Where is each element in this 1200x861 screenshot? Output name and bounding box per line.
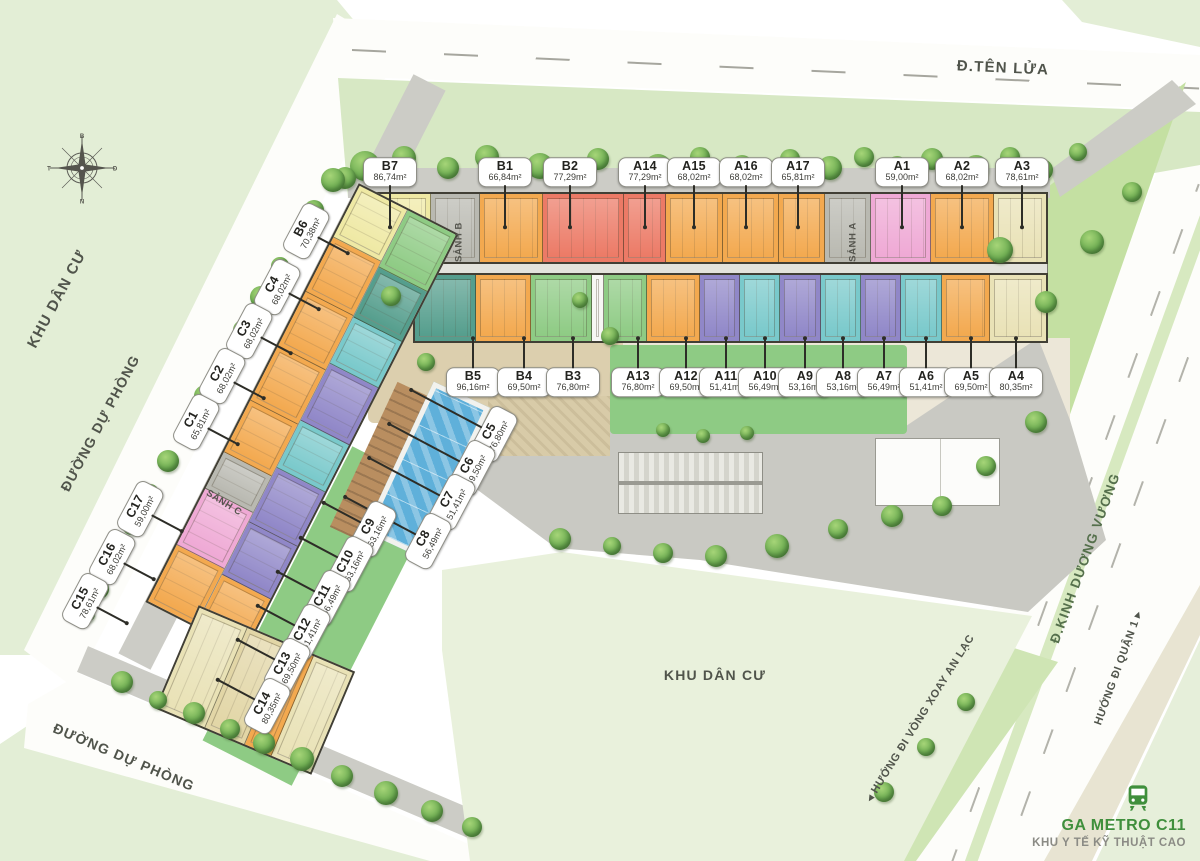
tree <box>421 800 443 822</box>
unit-block-orange <box>723 194 779 262</box>
top-wing-court-row <box>413 273 1048 343</box>
metro-train-icon <box>1122 782 1154 814</box>
unit-block-purple <box>861 275 901 341</box>
tree <box>157 450 179 472</box>
unit-block-orange <box>480 194 543 262</box>
unit-label-A15: A1568,02m² <box>667 157 721 187</box>
unit-block-red <box>543 194 624 262</box>
tree <box>572 292 588 308</box>
metro-label-block: GA METRO C11 KHU Y TẾ KỸ THUẬT CAO <box>1032 816 1186 850</box>
tree <box>656 423 670 437</box>
unit-label-A2: A268,02m² <box>935 157 989 187</box>
unit-block-purple <box>780 275 820 341</box>
tree <box>1025 411 1047 433</box>
tree <box>253 732 275 754</box>
tree <box>321 168 345 192</box>
area-label-khu-dan-cu-bottom: KHU DÂN CƯ <box>664 667 766 683</box>
tree <box>932 496 952 516</box>
unit-label-A1: A159,00m² <box>875 157 929 187</box>
unit-label-A16: A1668,02m² <box>719 157 773 187</box>
tree <box>828 519 848 539</box>
metro-station-subtitle: KHU Y TẾ KỸ THUẬT CAO <box>1032 836 1186 850</box>
unit-block-orange <box>942 275 991 341</box>
unit-block-purple <box>700 275 740 341</box>
tree <box>220 719 240 739</box>
tree <box>1069 143 1087 161</box>
tree <box>183 702 205 724</box>
lobby-label-B: SẢNH B <box>454 222 465 262</box>
tree <box>765 534 789 558</box>
tree <box>740 426 754 440</box>
tree <box>957 693 975 711</box>
tree <box>854 147 874 167</box>
unit-label-B1: B166,84m² <box>478 157 532 187</box>
site-plan-canvas: Đ.TÊN LỬA KHU DÂN CƯ ĐƯỜNG DỰ PHÒNG ĐƯỜN… <box>0 0 1200 861</box>
compass-rose: B Đ N T <box>46 132 118 204</box>
tree <box>1122 182 1142 202</box>
tree <box>149 691 167 709</box>
building-top-wing <box>355 192 1048 343</box>
tree <box>881 505 903 527</box>
metro-station-title: GA METRO C11 <box>1032 816 1186 836</box>
unit-block-green <box>531 275 592 341</box>
tree <box>653 543 673 563</box>
unit-label-B2: B277,29m² <box>543 157 597 187</box>
tree <box>437 157 459 179</box>
tree <box>381 286 401 306</box>
unit-label-B5: B596,16m² <box>446 367 500 397</box>
top-wing-corridor <box>410 264 1048 273</box>
tree <box>417 353 435 371</box>
tree <box>111 671 133 693</box>
unit-label-B3: B376,80m² <box>546 367 600 397</box>
parking-ramp <box>618 452 763 514</box>
unit-label-A14: A1477,29m² <box>618 157 672 187</box>
tree <box>917 738 935 756</box>
svg-text:T: T <box>47 167 51 173</box>
tree <box>331 765 353 787</box>
tree <box>1035 291 1057 313</box>
unit-label-A4: A480,35m² <box>989 367 1043 397</box>
tree <box>601 327 619 345</box>
svg-text:N: N <box>80 200 84 205</box>
unit-block-orange <box>647 275 700 341</box>
unit-block-cyan <box>901 275 941 341</box>
unit-block-cyan <box>740 275 780 341</box>
unit-label-A17: A1765,81m² <box>771 157 825 187</box>
tree <box>603 537 621 555</box>
unit-label-A13: A1376,80m² <box>611 367 665 397</box>
unit-label-B7: B786,74m² <box>363 157 417 187</box>
tree <box>374 781 398 805</box>
unit-block-orange <box>779 194 825 262</box>
tree <box>290 747 314 771</box>
tree <box>1080 230 1104 254</box>
tree <box>462 817 482 837</box>
tree <box>696 429 710 443</box>
unit-block-orange <box>476 275 531 341</box>
tree <box>705 545 727 567</box>
lobby-label-A: SẢNH A <box>848 222 859 262</box>
unit-label-B4: B469,50m² <box>497 367 551 397</box>
svg-text:B: B <box>80 134 85 140</box>
tree <box>987 237 1013 263</box>
svg-text:Đ: Đ <box>113 167 118 173</box>
tree <box>549 528 571 550</box>
unit-block-cyan <box>821 275 861 341</box>
tree <box>976 456 996 476</box>
unit-label-A3: A378,61m² <box>995 157 1049 187</box>
